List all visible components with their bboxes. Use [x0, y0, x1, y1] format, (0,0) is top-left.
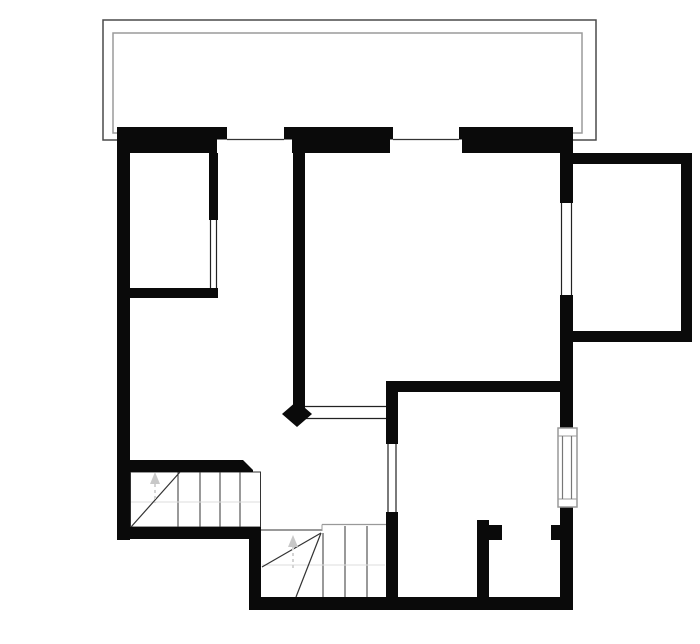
wall-bedroom-left-upper [386, 381, 398, 444]
door-leaf-diamond [282, 401, 312, 427]
window-top-mid-inner-cut [390, 140, 462, 154]
balcony-outer-line [103, 20, 596, 140]
wall-partition-cap [489, 525, 502, 540]
wall-right-middle [560, 295, 573, 428]
wall-bedroom-left-lower [386, 512, 398, 610]
floor-plan [0, 0, 700, 644]
hall-opening-cut [305, 406, 386, 420]
stair-lower-winder-line-1 [262, 533, 321, 567]
wall-bedroom-top [386, 381, 573, 392]
wall-middle-vertical [293, 153, 305, 408]
wall-partition [477, 520, 489, 597]
window-top-mid-outer-cut [393, 127, 459, 140]
wall-stair-top [117, 460, 253, 472]
wall-left-exterior [117, 127, 130, 540]
wall-right-upper [560, 127, 573, 203]
wall-room1-right [209, 153, 218, 220]
stair-upper-direction-arrow-icon [150, 472, 160, 484]
window-top-left-outer-cut [227, 127, 284, 140]
wall-bottom-exterior [249, 597, 573, 610]
wall-room1-bottom [128, 288, 218, 298]
stair-lower-direction-arrow-icon [288, 535, 298, 547]
window-top-left-inner-cut [217, 140, 292, 154]
window-right-lower-frame [558, 428, 577, 507]
wall-right-lower [560, 507, 573, 610]
wall-top-exterior [117, 127, 573, 153]
wall-bay-top [573, 153, 692, 164]
floor-plan-svg [0, 0, 700, 644]
balcony-inner-line [113, 33, 582, 133]
wall-bay-right [681, 153, 692, 342]
wall-right-door-stub [551, 525, 560, 540]
stair-upper-outline [131, 472, 261, 527]
wall-bay-bottom [573, 331, 692, 342]
wall-lowerleft-horizontal [117, 527, 261, 539]
